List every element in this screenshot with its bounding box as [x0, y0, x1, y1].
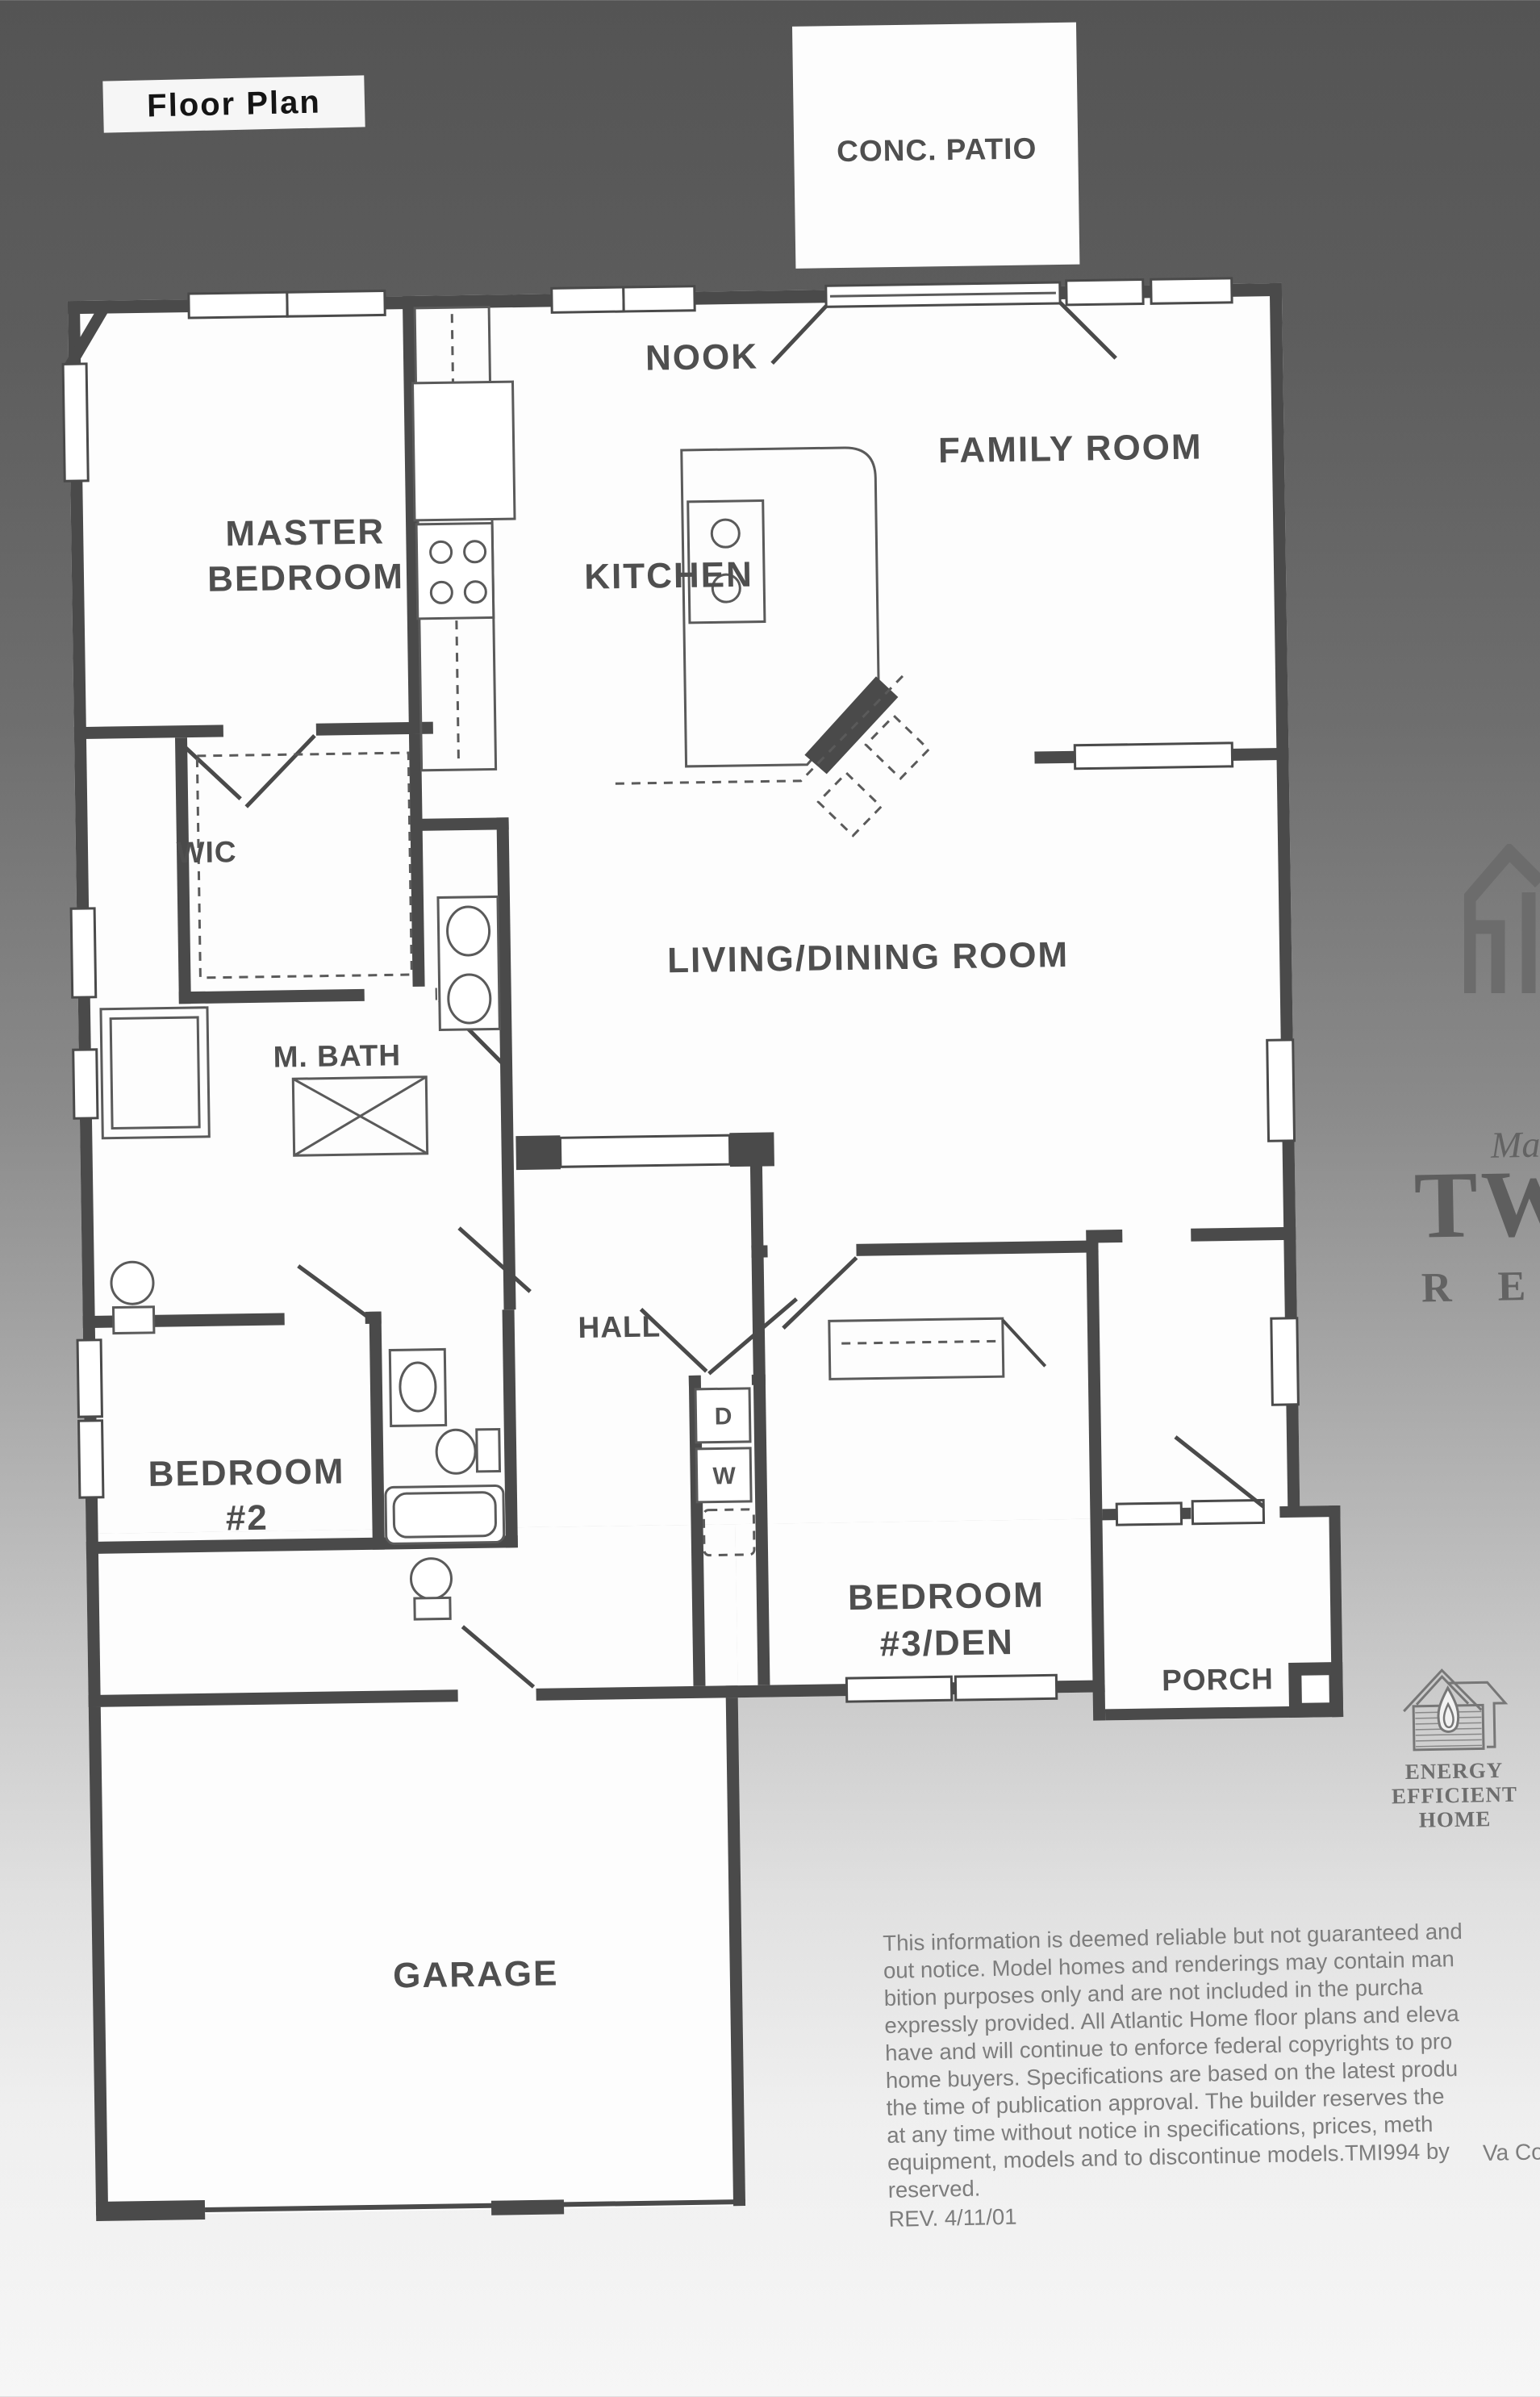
- floor-plan-group: CONC. PATIO NOOK FAMILY ROOM MASTER BEDR…: [58, 19, 1350, 2221]
- window: [79, 1421, 103, 1497]
- room-label-nook: NOOK: [645, 337, 759, 378]
- energy-logo-line3: HOME: [1382, 1806, 1527, 1832]
- main-floor-area: [68, 283, 1300, 1534]
- window: [1066, 279, 1143, 304]
- bath-sink: [390, 1349, 445, 1426]
- cased-opening: [560, 1135, 730, 1167]
- builder-house-logo-icon: [1464, 844, 1540, 993]
- room-label-bedroom3-line1: BEDROOM: [848, 1575, 1045, 1618]
- window: [552, 287, 624, 312]
- room-label-living-dining: LIVING/DINING ROOM: [667, 935, 1070, 980]
- window: [1151, 278, 1232, 303]
- room-label-hall: HALL: [578, 1309, 661, 1344]
- window: [189, 292, 287, 318]
- room-label-bedroom2-line1: BEDROOM: [148, 1451, 344, 1494]
- appliance-label-dryer: D: [714, 1403, 732, 1430]
- window: [846, 1677, 951, 1702]
- window: [71, 908, 96, 997]
- double-vanity: [438, 896, 499, 1029]
- window: [63, 364, 88, 481]
- window: [73, 1050, 98, 1118]
- room-label-kitchen: KITCHEN: [584, 555, 753, 597]
- energy-efficient-home-icon: [1392, 1663, 1514, 1760]
- room-label-wic: WIC: [176, 835, 237, 869]
- room-label-master-line2: BEDROOM: [207, 557, 404, 599]
- room-label-family-room: FAMILY ROOM: [938, 427, 1203, 470]
- room-label-bedroom3-line2: #3/DEN: [879, 1622, 1014, 1664]
- room-label-conc-patio: CONC. PATIO: [837, 132, 1037, 168]
- energy-logo-line2: EFFICIENT: [1382, 1781, 1527, 1808]
- flame-icon: [1438, 1688, 1459, 1732]
- refrigerator: [412, 382, 515, 520]
- corner-note-partial: Va Con: [1483, 2139, 1540, 2166]
- brand-name-partial: TW: [1413, 1148, 1540, 1261]
- utility-sink: [411, 1558, 452, 1599]
- window: [1075, 743, 1232, 769]
- garage-area: [86, 1524, 745, 2215]
- toilet: [436, 1430, 476, 1474]
- room-label-porch: PORCH: [1162, 1662, 1274, 1697]
- window: [1116, 1503, 1181, 1525]
- window: [955, 1675, 1056, 1700]
- window: [1271, 1318, 1299, 1405]
- front-door-leaf: [1192, 1500, 1263, 1523]
- appliance-label-washer: W: [712, 1463, 736, 1489]
- room-label-garage: GARAGE: [393, 1953, 559, 1995]
- brand-subtitle-partial: R E: [1421, 1263, 1540, 1313]
- room-label-master-line1: MASTER: [225, 512, 385, 553]
- room-label-bedroom2-line2: #2: [226, 1498, 269, 1539]
- window: [624, 286, 695, 311]
- scanned-floor-plan-page: { "title": "Floor Plan", "rooms": { "con…: [0, 0, 1540, 2397]
- window: [77, 1340, 102, 1417]
- disclaimer-text-block: This information is deemed reliable but …: [883, 1915, 1540, 2233]
- energy-efficient-home-logo: ENERGY EFFICIENT HOME: [1379, 1662, 1528, 1832]
- stove: [416, 523, 494, 618]
- window: [287, 290, 385, 316]
- energy-logo-line1: ENERGY: [1381, 1757, 1526, 1784]
- window: [1267, 1040, 1295, 1141]
- room-label-m-bath: M. BATH: [273, 1038, 401, 1073]
- toilet: [111, 1262, 154, 1305]
